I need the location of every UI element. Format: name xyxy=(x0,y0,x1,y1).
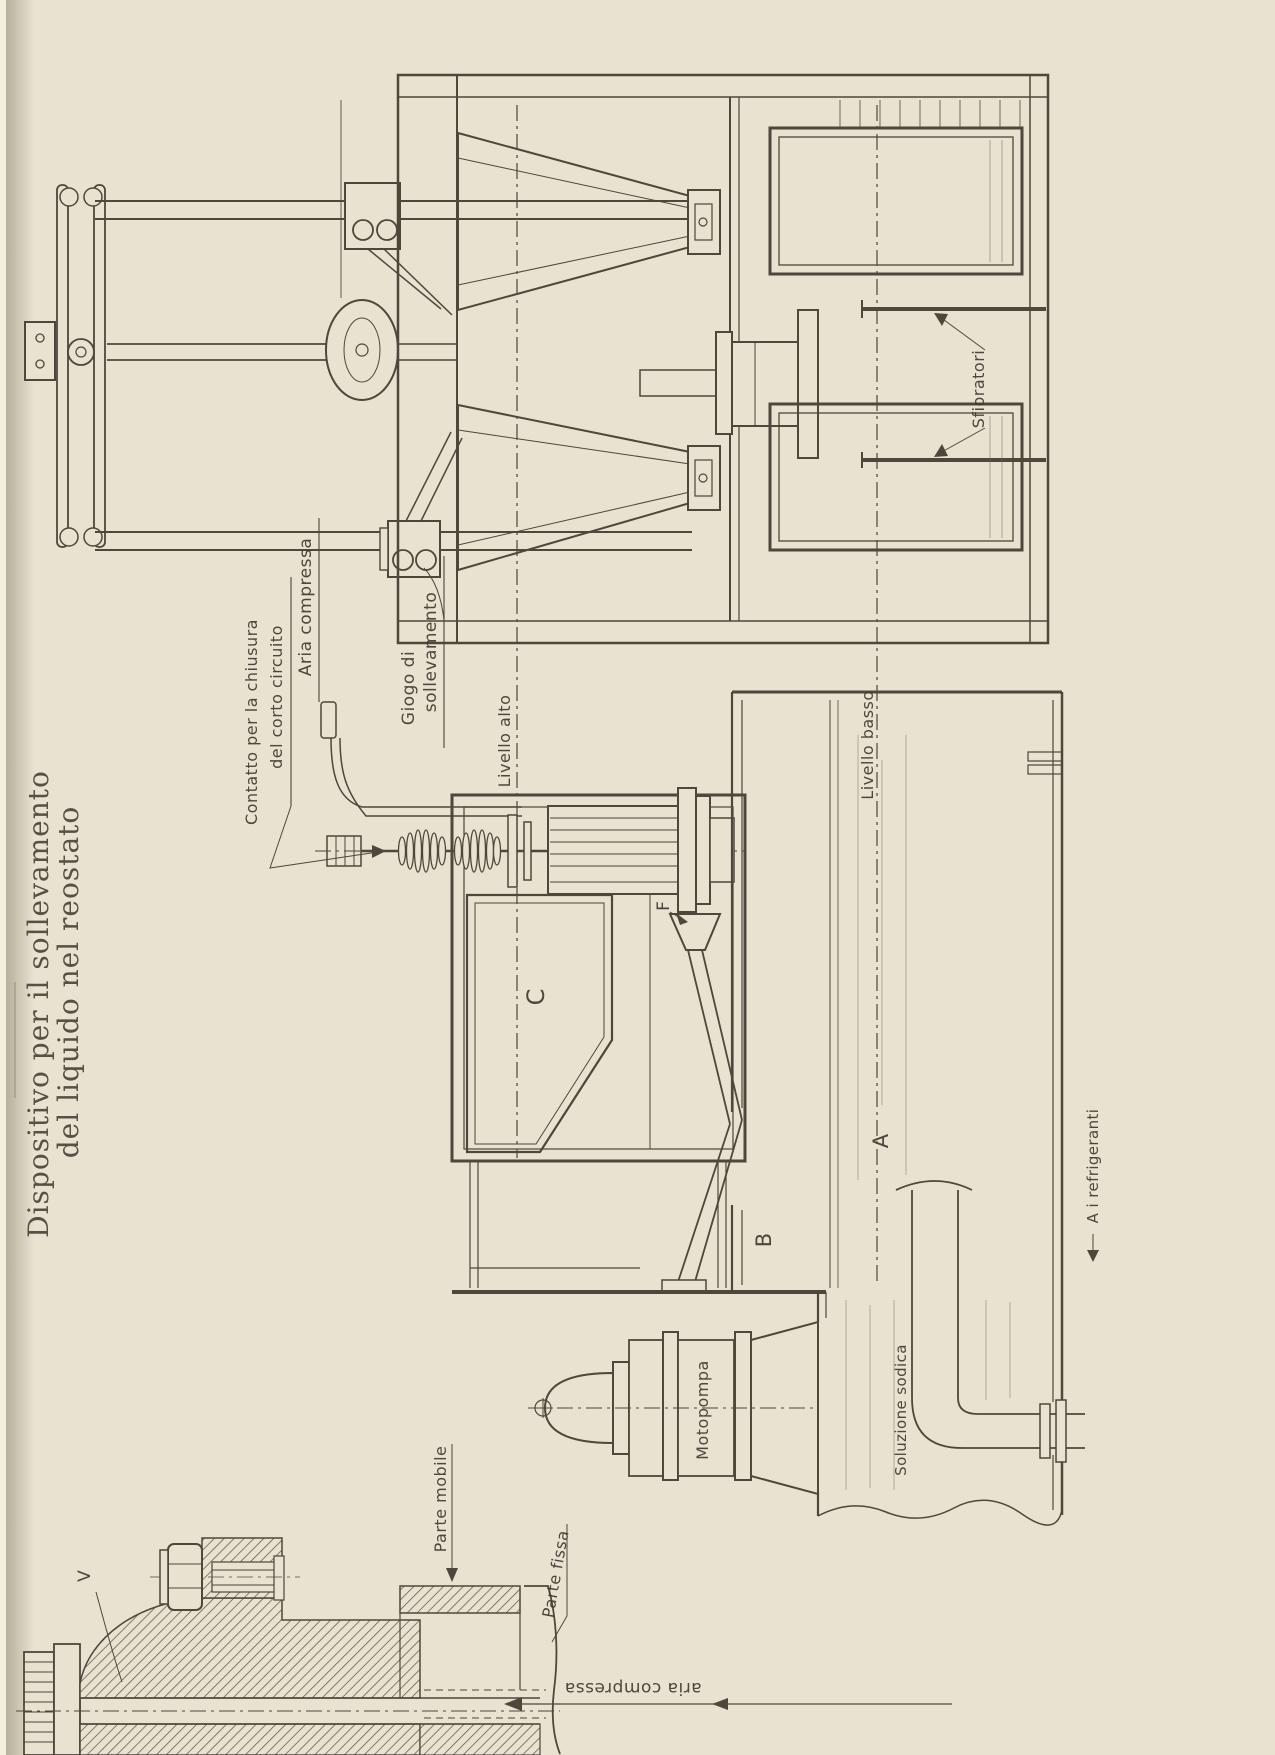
label-contatto-line2: del corto circuito xyxy=(267,625,286,769)
plate-title-line1: Dispositivo per il sollevamento xyxy=(22,770,55,1238)
plate-title-line2: del liquido nel reostato xyxy=(52,806,85,1159)
label-livello-alto: Livello alto xyxy=(495,695,514,788)
label-giogo-line1: Giogo di xyxy=(399,651,419,725)
label-soluzione-sodica: Soluzione sodica xyxy=(892,1344,910,1476)
label-aria-compressa-bottom: aria compressa xyxy=(564,1678,701,1698)
label-livello-basso: Livello basso xyxy=(858,690,877,799)
label-giogo-line2: sollevamento xyxy=(421,592,441,713)
letter-a: A xyxy=(869,1133,893,1148)
label-aria-compressa: Aria compressa xyxy=(296,538,316,676)
scanned-plate-page: Dispositivo per il sollevamento del liqu… xyxy=(0,0,1275,1755)
page-edge xyxy=(0,0,7,1755)
label-motopompa: Motopompa xyxy=(693,1360,712,1460)
letter-f: F xyxy=(654,901,674,911)
air-pipe-fitting xyxy=(321,702,336,738)
letter-c: C xyxy=(522,989,550,1006)
technical-drawing: Dispositivo per il sollevamento del liqu… xyxy=(0,0,1275,1755)
label-sfioratori: Sfioratori xyxy=(969,350,988,429)
label-refrigeranti: A i refrigeranti xyxy=(1084,1109,1102,1224)
letter-b: B xyxy=(752,1233,776,1247)
label-contatto-line1: Contatto per la chiusura xyxy=(242,619,261,825)
label-parte-mobile: Parte mobile xyxy=(431,1446,450,1553)
letter-v: V xyxy=(75,1570,95,1582)
hex-nut xyxy=(168,1544,202,1610)
moving-sleeve xyxy=(400,1586,520,1613)
